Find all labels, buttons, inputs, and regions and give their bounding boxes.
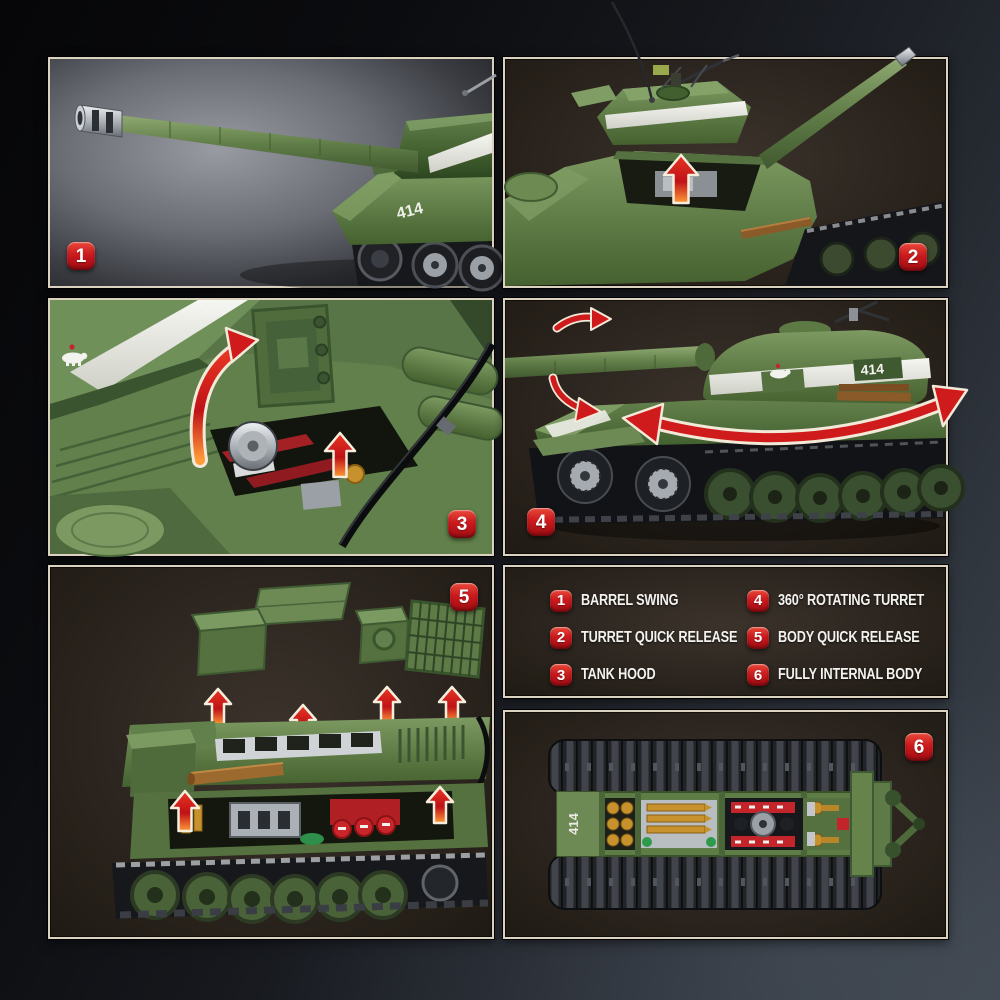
tank-track-bottom [549, 855, 881, 909]
open-hatch [253, 306, 334, 407]
panel-5-body-quick-release: 5 [48, 565, 494, 939]
panel-2-turret-quick-release: 2 [503, 57, 948, 288]
legend-label-6: FULLY INTERNAL BODY [778, 666, 922, 684]
legend-badge-1: 1 [550, 590, 572, 612]
floating-box-right [356, 607, 408, 663]
legend-item-6: 6 FULLY INTERNAL BODY [747, 659, 956, 692]
legend-label-4: 360° ROTATING TURRET [778, 592, 924, 610]
panel-4-rotating-turret: 414 414 [503, 298, 948, 556]
hull-number: 414 [566, 812, 581, 834]
legend-item-3: 3 TANK HOOD [550, 659, 747, 692]
legend-item-1: 1 BARREL SWING [550, 584, 747, 617]
feature-legend: 1 BARREL SWING 4 360° ROTATING TURRET 2 … [503, 565, 948, 698]
tank-track [112, 853, 488, 922]
tank-hull [505, 151, 946, 286]
legend-label-2: TURRET QUICK RELEASE [581, 629, 737, 647]
tank-track-top [549, 740, 881, 794]
legend-grid: 1 BARREL SWING 4 360° ROTATING TURRET 2 … [505, 567, 946, 696]
legend-badge-3: 3 [550, 664, 572, 686]
legend-item-4: 4 360° ROTATING TURRET [747, 584, 956, 617]
floating-plate [252, 583, 350, 625]
floating-turret [571, 55, 751, 145]
legend-badge-4: 4 [747, 590, 769, 612]
turret-number: 414 [200, 299, 227, 319]
badge-4: 4 [527, 508, 555, 536]
legend-item-2: 2 TURRET QUICK RELEASE [550, 621, 747, 654]
turret-release-illustration [505, 59, 946, 286]
tank-barrel [759, 47, 916, 169]
floating-box-left [192, 609, 266, 675]
panel-1-barrel-swing: 414 [48, 57, 494, 288]
tank-barrel [505, 343, 715, 378]
body-release-illustration [50, 567, 492, 937]
panel-6-internal-body: 414 [503, 710, 948, 939]
badge-6: 6 [905, 733, 933, 761]
badge-5: 5 [450, 583, 478, 611]
product-feature-collage: 414 [0, 0, 1000, 1000]
barrel-swing-illustration: 414 [50, 59, 492, 286]
legend-label-1: BARREL SWING [581, 592, 678, 610]
panel-3-tank-hood: 414 [48, 298, 494, 556]
badge-3: 3 [448, 510, 476, 538]
legend-badge-2: 2 [550, 627, 572, 649]
turret-number: 414 [860, 360, 885, 378]
floating-mesh-panel [406, 601, 484, 677]
legend-label-3: TANK HOOD [581, 666, 656, 684]
hull-top-view: 414 [557, 792, 879, 856]
tank-hood-illustration: 414 [50, 300, 492, 554]
internal-body-illustration: 414 [505, 712, 946, 937]
badge-2: 2 [899, 243, 927, 271]
legend-badge-6: 6 [747, 664, 769, 686]
rear-plate [851, 772, 925, 876]
rotating-turret-illustration: 414 414 [505, 300, 946, 554]
legend-badge-5: 5 [747, 627, 769, 649]
legend-item-5: 5 BODY QUICK RELEASE [747, 621, 956, 654]
badge-1: 1 [67, 242, 95, 270]
legend-label-5: BODY QUICK RELEASE [778, 629, 920, 647]
